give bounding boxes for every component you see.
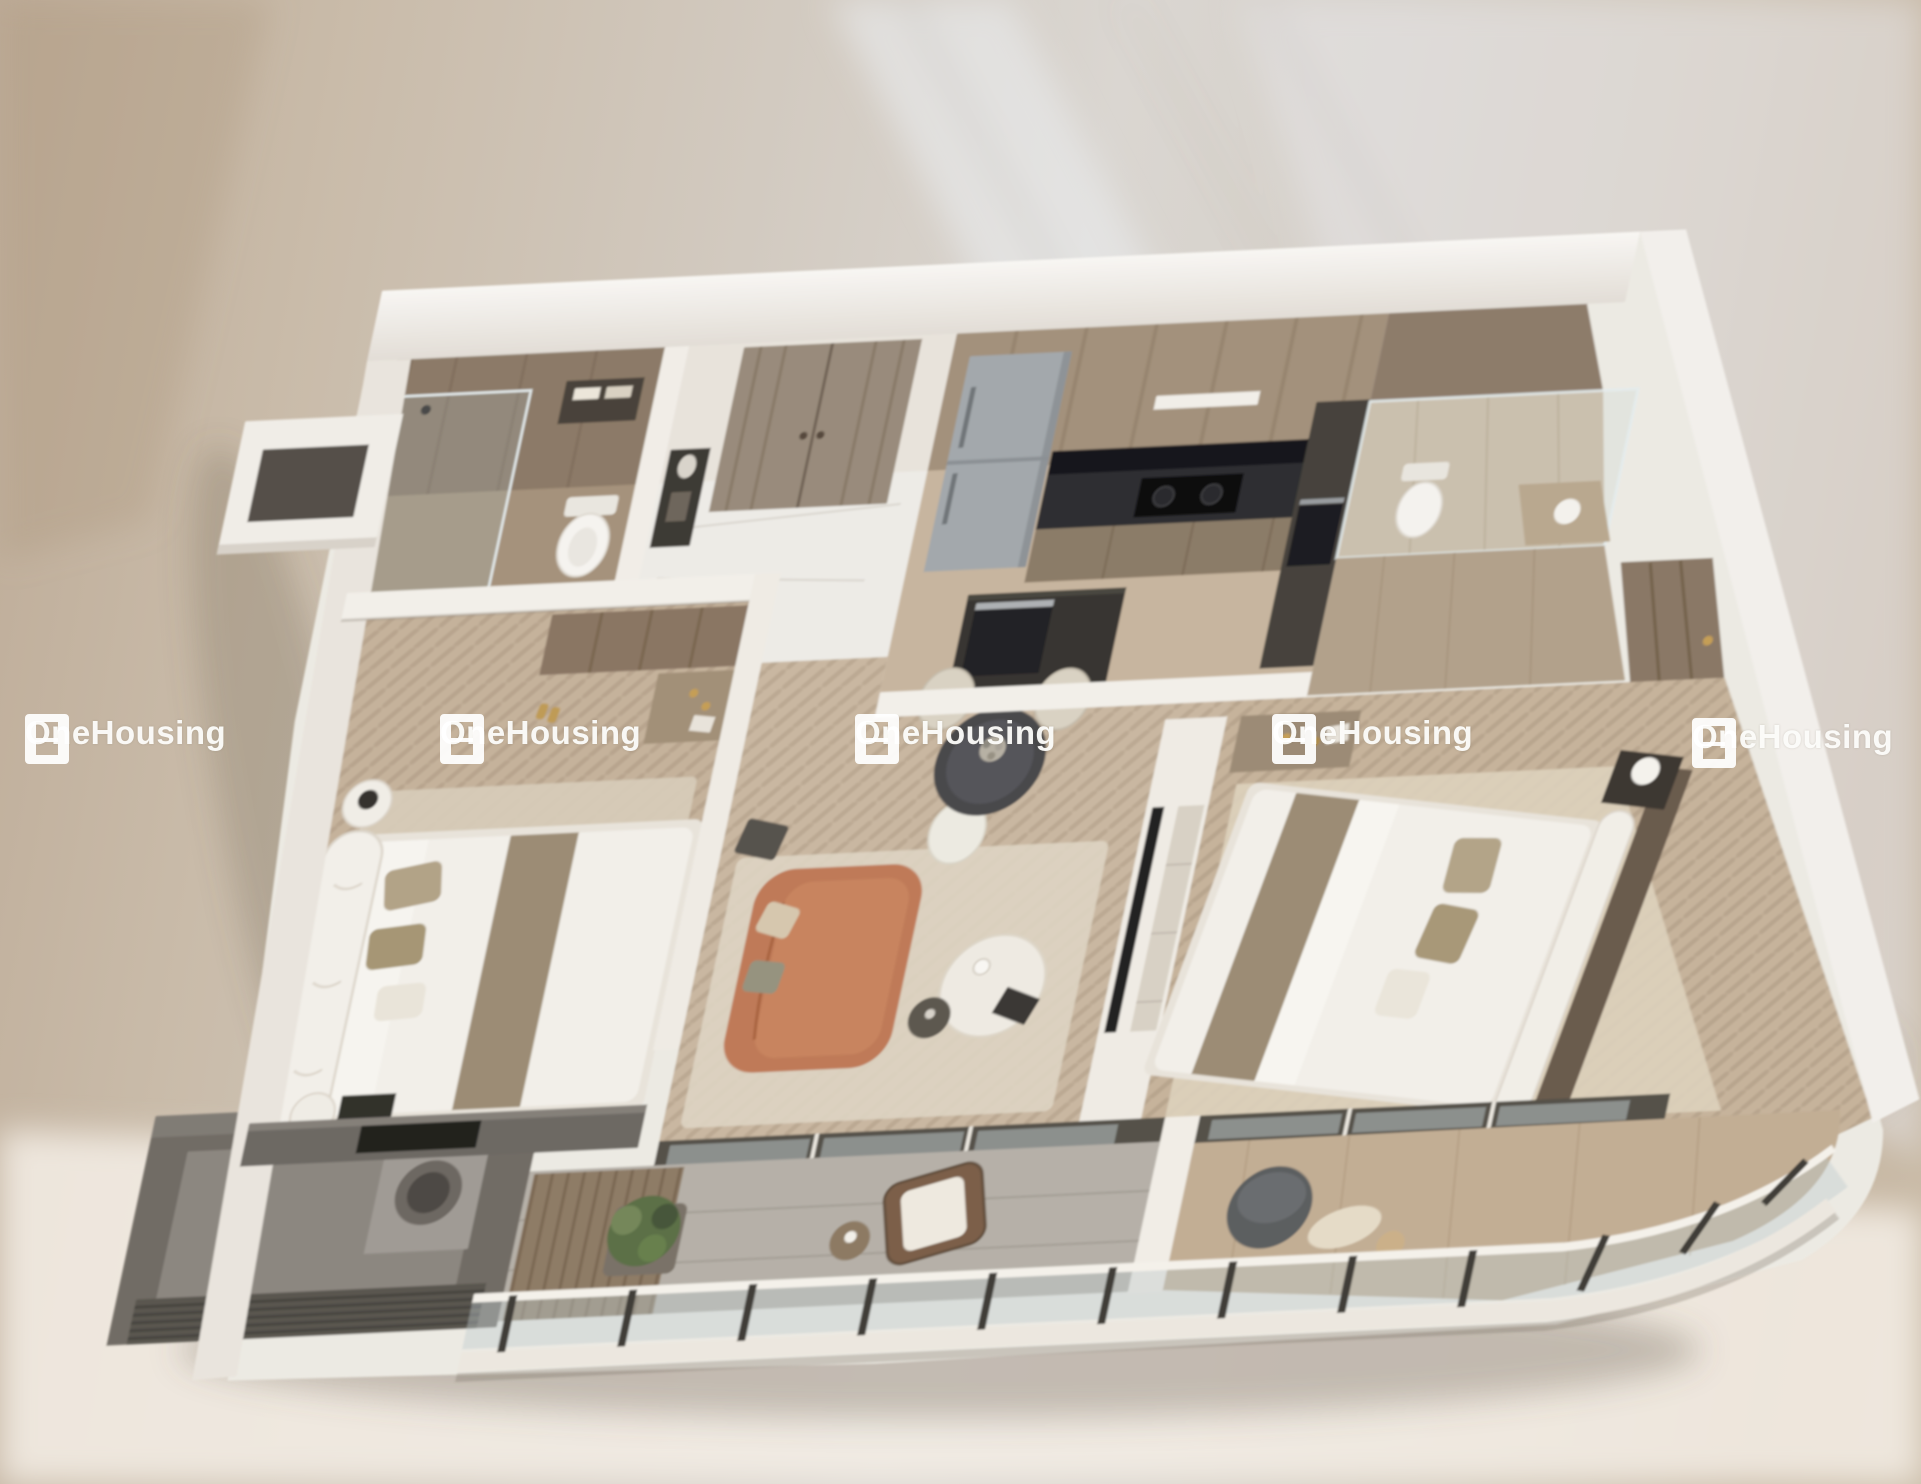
floorplan-render: OneHousing OneHousing OneHousing OneHous… bbox=[0, 0, 1921, 1484]
dresser-bedroom1 bbox=[643, 670, 734, 744]
apartment-model bbox=[35, 209, 1921, 1403]
shaft-niche bbox=[217, 414, 404, 555]
kitchen-island bbox=[948, 587, 1126, 689]
apartment-3d-scene bbox=[0, 0, 1921, 1484]
bath-vanity bbox=[557, 377, 644, 424]
entry-double-door bbox=[709, 339, 922, 512]
kitchen bbox=[875, 313, 1389, 717]
bed-1 bbox=[266, 815, 706, 1131]
cooktop bbox=[1133, 473, 1243, 517]
dresser-master bbox=[1229, 710, 1361, 772]
wardrobe-bedroom1 bbox=[539, 605, 748, 675]
